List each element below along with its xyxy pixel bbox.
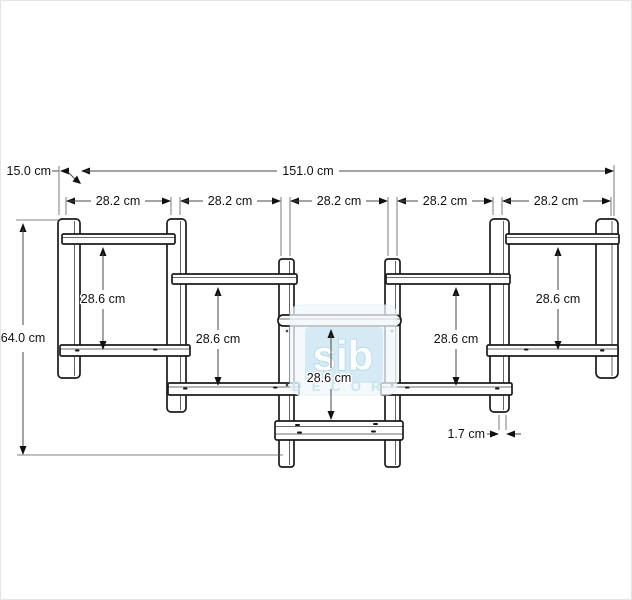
shelf-board-section2-top <box>172 274 297 284</box>
shelf-board-section5-bottom <box>487 345 618 356</box>
dimension-section-height-1: 28.6 cm <box>81 247 125 350</box>
dim-section-width-label-2: 28.2 cm <box>208 194 252 208</box>
dim-section-width-label-4: 28.2 cm <box>423 194 467 208</box>
dimension-section-widths: 28.2 cm 28.2 cm 28.2 cm 28.2 cm 28.2 cm <box>66 194 611 256</box>
shelf-board-section1-top <box>62 234 175 244</box>
dim-section-height-label-1: 28.6 cm <box>81 292 125 306</box>
shelf-board-section5-top <box>506 234 619 244</box>
dim-depth-label: 15.0 cm <box>7 164 51 178</box>
shelf-board-section4-top <box>386 274 510 284</box>
dimension-section-height-2: 28.6 cm <box>196 287 240 386</box>
dim-total-height-label: 64.0 cm <box>1 331 45 345</box>
shelf-technical-drawing: sib DECOR 15.0 cm 151.0 cm 28 <box>1 1 631 599</box>
shelf-board-section2-bottom <box>168 383 299 395</box>
dim-section-height-label-3: 28.6 cm <box>307 371 351 385</box>
drawing-canvas: sib DECOR 15.0 cm 151.0 cm 28 <box>0 0 632 600</box>
dimension-section-height-4: 28.6 cm <box>434 287 478 386</box>
dim-section-width-label-1: 28.2 cm <box>96 194 140 208</box>
dim-section-height-label-4: 28.6 cm <box>434 332 478 346</box>
shelf-board-section3-bottom <box>275 421 403 440</box>
dimension-panel-thickness: 1.7 cm <box>447 415 521 441</box>
dimension-depth: 15.0 cm <box>7 164 81 215</box>
dim-total-width-label: 151.0 cm <box>282 164 333 178</box>
shelf-board-section4-bottom <box>381 383 512 395</box>
dim-section-height-label-5: 28.6 cm <box>536 292 580 306</box>
dim-panel-thickness-label: 1.7 cm <box>447 427 485 441</box>
dimension-section-height-5: 28.6 cm <box>536 247 580 350</box>
dimension-total-width: 151.0 cm <box>81 164 614 216</box>
dimension-total-height: 64.0 cm <box>1 220 283 455</box>
dim-section-width-label-3: 28.2 cm <box>317 194 361 208</box>
dim-section-width-label-5: 28.2 cm <box>534 194 578 208</box>
dim-section-height-label-2: 28.6 cm <box>196 332 240 346</box>
